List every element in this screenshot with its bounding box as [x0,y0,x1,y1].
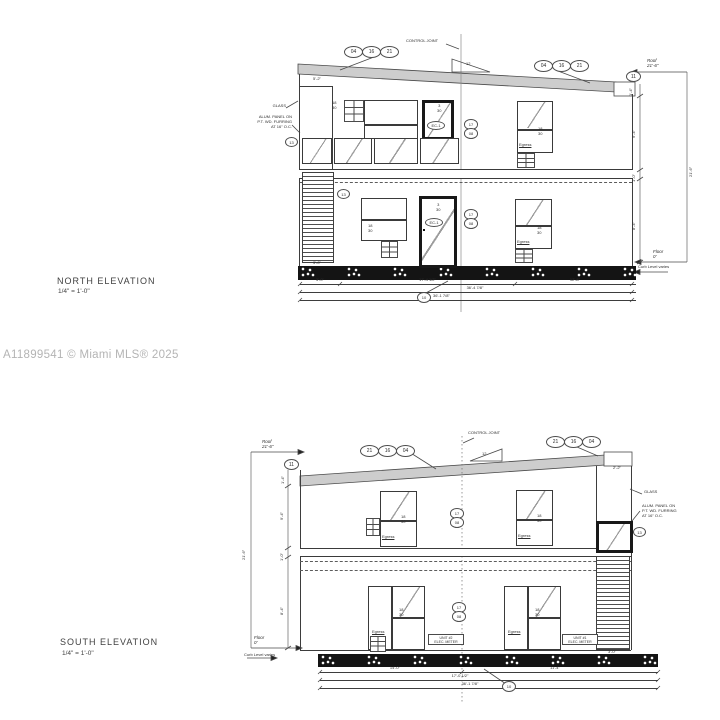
dim-bottom-sub: 17'-0 1/2" [420,674,500,679]
window-size-tag: 18 30 [368,224,372,233]
keynote-text: 16 [369,49,375,55]
dim-bottom: 3'-0" [300,278,340,283]
callout-bubble-08: 08 [464,218,478,229]
bubble-text: 08 [469,131,473,136]
floor-level-marker: Floor 0' [254,635,264,645]
callout-bubble-13: 13 [285,137,298,147]
dim-floor-band: 1'-0" [280,545,285,561]
egress-label: Egress [508,630,520,635]
north-elevation-scale: 1/4" = 1'-0" [58,288,90,295]
dim-bottom-total: 36'-1 7/8" [433,294,450,299]
tag-text: EC-1 [431,123,440,128]
south-cap-dim: 2'-2" [602,466,632,471]
south-floor-line [300,650,631,651]
bubble-text: 10 [507,684,511,689]
south-dim-tier1 [320,672,658,673]
north-ceiling-dashed-line [300,182,632,183]
window-dark-frame [596,521,633,553]
unit-label-line: ELEC. METER [430,640,462,644]
north-bay-head [300,86,332,87]
dim-parapet: 1'-4" [629,82,634,96]
south-panel-note-line: AT 16" O.C. [642,514,663,519]
window-schedule-box [517,153,535,168]
ec1-tag: EC-1 [427,121,445,130]
floor-level-marker: Floor 0' [653,249,663,259]
clerestory-window [334,138,372,164]
window [361,198,407,241]
bubble-text: 10 [422,295,426,300]
north-slope-label: 12 [466,62,470,67]
dim-bottom: 14'-0" [360,666,430,671]
bubble-text: 17 [469,212,473,217]
south-floor-band [300,548,631,557]
keynote-text: 21 [577,63,583,69]
north-joint-leader [446,44,459,49]
louver-panel [302,172,334,263]
tag-height: 30 [437,109,441,114]
dim-bottom: 12'-8" [545,278,605,283]
window-mullion [516,519,553,521]
egress-label: Egress [517,240,529,245]
keynote-text: 21 [387,49,393,55]
dim-total-height: 21'-6" [689,155,694,177]
callout-bubble-11: 11 [626,71,641,82]
roof-level-marker: Roof 21'-6" [262,439,273,449]
keynote-bubble: 16 [564,436,583,448]
window-size-tag: 3 30 [437,104,441,113]
window-glass [529,587,560,617]
dim-bottom-sub: 36'-4 7/8" [440,286,510,291]
window-schedule-box [366,518,380,536]
keynote-text: 16 [385,448,391,454]
keynote-bubble: 16 [378,445,397,457]
keynote-bubble: 04 [534,60,553,72]
keynote-text: 21 [553,439,559,445]
window-glass [381,492,416,520]
south-left-wall [300,470,301,650]
window-size-tag: 18 30 [537,226,541,235]
bubble-text: 08 [469,221,473,226]
south-dim-tier3 [320,688,658,689]
clerestory-window [374,138,418,164]
south-roof-level-arrow [298,450,304,455]
window-door-assembly [504,586,561,650]
callout-bubble-13: 13 [337,189,350,199]
keynote-text: 21 [367,448,373,454]
window-mullion [364,124,418,126]
window-schedule-box [381,241,398,258]
window-size-tag: 18 30 [537,514,541,523]
tag-height: 30 [436,208,440,213]
dim-total-height: 21'-6" [242,538,247,560]
dim-upper-floor: 9'-4" [280,500,285,520]
callout-bubble-13: 13 [633,527,646,537]
window-glass [393,587,424,617]
tag-height: 30 [401,520,405,525]
dim-bottom: 17'-4 1/2" [380,278,475,283]
bubble-text: 08 [457,614,461,619]
ec1-tag: EC-1 [425,218,443,227]
tag-height: 30 [535,613,539,618]
keynote-bubble: 21 [570,60,589,72]
keynote-bubble: 16 [362,46,381,58]
tag-height: 30 [537,231,541,236]
window-mullion [517,129,553,131]
egress-label: Egress [519,143,531,148]
keynote-text: 04 [351,49,357,55]
keynote-text: 16 [571,439,577,445]
south-ceiling-dashed-line [300,570,631,571]
plan-sheet: 04 16 21 04 16 21 CONTROL JOINT 12 5'-2"… [0,0,720,720]
level-value: 0' [254,640,264,645]
egress-label: Egress [518,534,530,539]
south-slope-label: 12 [482,452,486,457]
south-elevation-title: SOUTH ELEVATION [60,637,158,647]
egress-label: Egress [372,630,384,635]
keynote-bubble: 21 [380,46,399,58]
keynote-bubble: 21 [546,436,565,448]
clerestory-window [420,138,459,164]
window-glass [518,102,552,128]
bubble-text: 17 [455,511,459,516]
dim-upper-floor: 9'-4" [632,118,637,138]
north-glass-note: GLASS [250,104,286,109]
north-panel-note-line: AT 16" O.C. [244,125,292,130]
dim-bottom: 11'-4" [520,666,590,671]
tag-height: 30 [399,613,403,618]
bubble-text: 11 [631,74,636,80]
unit-label-line: ELEC. METER [564,640,596,644]
window-mullion [391,617,425,619]
door-size-tag: 3 30 [436,203,440,212]
keynote-text: 16 [559,63,565,69]
south-parapet-cap [604,452,632,466]
north-joint-note: CONTROL JOINT [406,39,438,44]
north-dim-tier2 [300,292,636,293]
window-size-tag: 18 30 [538,127,542,136]
bubble-text: 13 [341,192,345,197]
north-elevation-title: NORTH ELEVATION [57,276,156,286]
window-size-tag: 18 30 [401,515,405,524]
door-handle [423,229,425,231]
bubble-text: 13 [637,530,641,535]
level-value: 21'-6" [647,63,658,68]
callout-bubble-10: 10 [502,681,516,692]
dim-lower-floor: 8'-4" [632,210,637,230]
bubble-text: 17 [457,605,461,610]
window-schedule-box [515,249,533,263]
window-mullion [361,219,407,221]
bubble-text: 08 [455,520,459,525]
window [364,100,418,139]
south-glass-note: GLASS [644,490,657,495]
window-schedule-box [370,636,386,652]
dim-bottom-total: 36'-1 7/8" [435,682,505,687]
tag-height: 30 [537,519,541,524]
north-dim-tier3 [300,300,636,301]
south-joint-note: CONTROL JOINT [468,431,500,436]
unit-label-box: UNIT #1 ELEC. METER [562,634,598,645]
level-value: 21'-6" [262,444,273,449]
tag-text: EC-1 [429,220,438,225]
south-dim-tier2 [320,680,658,681]
keynote-text: 04 [541,63,547,69]
north-slope-triangle [452,59,490,72]
window-schedule-box [344,100,364,122]
egress-label: Egress [382,535,394,540]
keynote-bubble: 16 [552,60,571,72]
curb-note: Curb Level varies [638,265,669,270]
level-value: 0' [653,254,663,259]
callout-bubble-08: 08 [452,611,466,622]
louver-width-dim: 3'-0" [592,650,632,655]
callout-bubble-08: 08 [464,128,478,139]
north-floor-band [299,169,633,179]
mls-watermark: A11899541 © Miami MLS® 2025 [3,349,179,362]
callout-bubble-10: 10 [417,292,431,303]
south-roof-band [300,455,605,486]
south-right-wall [631,466,632,650]
keynote-bubble: 04 [396,445,415,457]
bubble-text: 17 [469,122,473,127]
dim-lower-floor: 8'-4" [280,595,285,615]
south-ceiling-dashed-line [300,561,631,562]
dim-floor-band: 1'-0" [632,166,637,182]
window-size-tag: 18 30 [399,608,403,617]
tag-height: 30 [332,106,336,111]
unit-label-box: UNIT #2 ELEC. METER [428,634,464,645]
north-glass-leader [286,101,298,108]
louver-panel [596,556,630,650]
north-bay-line [332,86,333,170]
window-mullion [380,520,417,522]
tag-height: 30 [538,132,542,137]
south-panel-leader [632,511,640,521]
south-elevation-scale: 1/4" = 1'-0" [62,650,94,657]
roof-level-marker: Roof 21'-6" [647,58,658,68]
bubble-text: 11 [289,462,294,468]
window-mullion [515,225,552,227]
keynote-text: 04 [589,439,595,445]
keynote-bubble: 04 [344,46,363,58]
window-glass [516,200,551,225]
south-joint-leader [463,438,474,443]
window-glass [517,491,552,519]
callout-bubble-11: 11 [284,459,299,470]
keynote-bubble: 21 [360,445,379,457]
callout-bubble-08: 08 [450,517,464,528]
clerestory-window [302,138,332,164]
keynote-text: 04 [403,448,409,454]
dim-parapet: 1'-4" [281,470,286,484]
window-size-tag: 18 30 [332,101,336,110]
keynote-bubble: 04 [582,436,601,448]
curb-note: Curb Level varies [244,653,275,658]
window-mullion [527,617,561,619]
tag-height: 30 [368,229,372,234]
window-size-tag: 18 30 [535,608,539,617]
north-bay-dim: 5'-2" [302,77,332,82]
bubble-text: 13 [289,140,293,145]
louver-width-dim: 3'-0" [298,261,336,266]
